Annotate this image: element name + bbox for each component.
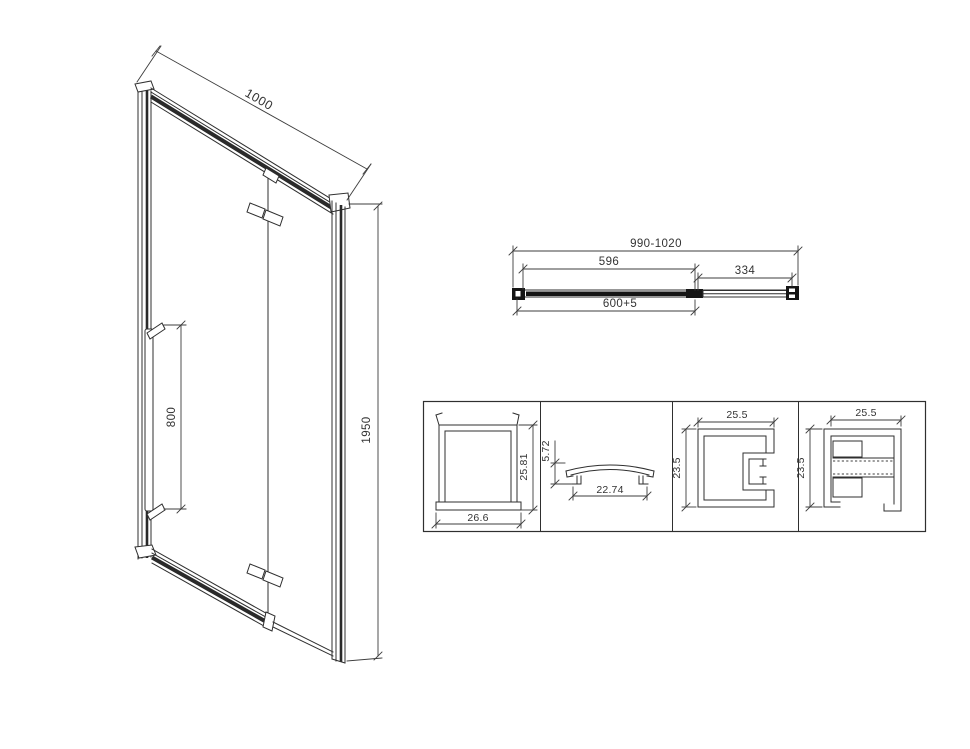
- dim-glass: 596: [519, 256, 699, 290]
- dim-overall: 990-1020: [509, 238, 802, 287]
- dim-door-width: 1000: [137, 46, 371, 200]
- dim-c-height-label: 23.5: [671, 457, 683, 478]
- door-handle: [145, 323, 165, 520]
- dim-side-label: 334: [735, 265, 756, 277]
- right-wall-profile: [332, 201, 345, 663]
- plan-view: 990-1020 596 334 600+5: [509, 238, 802, 315]
- bottom-rail: [152, 549, 333, 656]
- hinge-bottom: [247, 564, 283, 587]
- profile-sections-panel: 26.6 25.81: [424, 402, 926, 532]
- bottom-rail-end-cap: [263, 612, 275, 631]
- technical-drawing-page: 1000 800 1950: [0, 0, 970, 749]
- iso-door-view: 1000 800 1950: [135, 46, 382, 663]
- door-division: [263, 168, 279, 617]
- hinge-top: [247, 203, 283, 226]
- dim-handle-label: 800: [166, 407, 178, 427]
- dim-side: 334: [694, 265, 796, 290]
- dim-e-height-label: 23.5: [795, 457, 807, 478]
- drawing-canvas: 1000 800 1950: [0, 0, 970, 749]
- door-glass-bar: [526, 292, 695, 297]
- left-profile-top-cap: [135, 81, 154, 92]
- dim-e-width-label: 25.5: [855, 407, 876, 419]
- dim-channel-height-label: 25.81: [518, 453, 530, 480]
- dim-door-height: 1950: [347, 202, 382, 661]
- dim-overall-label: 990-1020: [630, 238, 682, 250]
- panel-connector: [686, 289, 703, 298]
- dim-door-opening-label: 600+5: [603, 298, 637, 310]
- dim-cap-height-label: 5.72: [540, 440, 552, 461]
- dim-cap-width-label: 22.74: [596, 484, 623, 496]
- plan-assembly: [512, 286, 799, 300]
- dim-door-opening: 600+5: [513, 298, 699, 315]
- dim-c-width-label: 25.5: [726, 409, 747, 421]
- dim-handle: 800: [164, 321, 186, 513]
- top-rail: [151, 88, 350, 214]
- dim-door-height-label: 1950: [361, 416, 373, 443]
- dim-glass-label: 596: [599, 256, 619, 268]
- dim-channel-width-label: 26.6: [467, 512, 488, 524]
